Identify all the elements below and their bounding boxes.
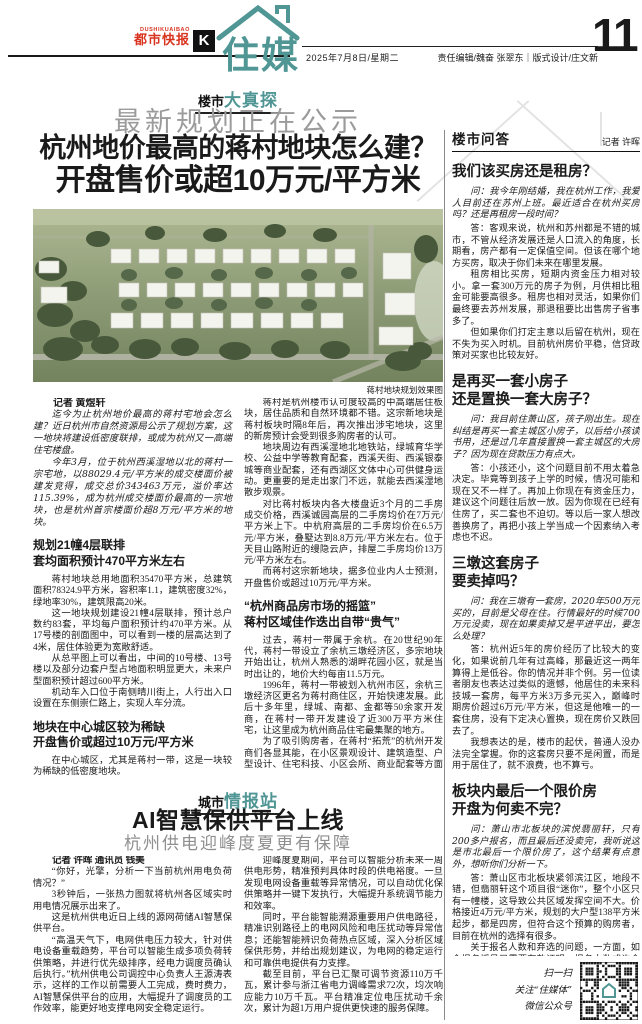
subhead-planning: 规划21幢4层联排 套均面积预计470平方米左右 [33, 538, 232, 570]
question-head-sell-sandun: 三墩这套房子 要卖掉吗？ [452, 555, 640, 591]
question-text: 问：我今年刚结婚，我在杭州工作，我爱人目前还在苏州上班。最近适合在杭州买房吗？还… [452, 186, 640, 221]
column-divider [444, 130, 445, 1020]
subhead-cradle: “杭州商品房市场的摇篮” 蒋村区域佳作迭出自带“贵气” [244, 599, 443, 631]
body-paragraph: 对比蒋村板块内各大楼盘近3个月的二手房成交价格，西溪诚园高层的二手房均价在7万元… [244, 500, 443, 568]
answer-paragraph: 租房相比买房，短期内资金压力相对较小。拿一套300万元的房子为例，月供相比租金可… [452, 269, 640, 327]
byline: 记者 黄煜轩 [33, 398, 232, 409]
answer-paragraph: 但如果你们打定主意以后留在杭州，现在不失为买入时机。目前杭州房价平稳，信贷政策对… [452, 327, 640, 362]
answer-paragraph: 答：小孩还小，这个问题目前不用太着急决定。毕竟等到孩子上学的时候，情况可能和现在… [452, 463, 640, 544]
qa-column: 楼市问答 记者 许晖 我们该买房还是租房？ 问：我今年刚结婚，我在杭州工作，我爱… [452, 128, 640, 1024]
qr-code [580, 962, 638, 1020]
body-paragraph: 同时，平台能智能溯源重要用户供电路径，精准识别路径上的电网风险和电压扰动等异常信… [244, 913, 443, 970]
question-text: 问：萧山市北板块的滨悦翡丽轩，只有200多户报名，而且最后还没卖完，我听说这是市… [452, 824, 640, 870]
question-head-line: 板块内最后一个限价房 [452, 783, 640, 801]
question-head-line: 我们该买房还是租房？ [452, 163, 640, 181]
page-number: 11 [592, 8, 637, 62]
body-paragraph: 过去，蒋村一带属于余杭。在20世纪90年代，蒋村一带设立了余杭三墩经济区，多宗地… [244, 636, 443, 681]
question-head-buy-or-rent: 我们该买房还是租房？ [452, 163, 640, 181]
body-paragraph: 这一地块规划建设21幢4层联排，预计总户数约83套，平均每户面积预计约470平方… [33, 609, 232, 654]
question-head-price-cap: 板块内最后一个限价房 开盘为何卖不完？ [452, 783, 640, 819]
qa-header: 楼市问答 记者 许晖 [452, 128, 640, 152]
power-subheadline: 杭州供电迎峰度夏更有保障 [33, 829, 443, 854]
question-head-small-or-big: 是再买一套小房子 还是置换一套大房子？ [452, 373, 640, 409]
wechat-qr-footer: 扫一扫 关注“住媒体” 微信公众号 [452, 956, 640, 1024]
power-article-body: 记者 许晖 通讯员 钱美 “你好，光擎，分析一下当前杭州用电负荷情况？” 3秒钟… [33, 856, 443, 1024]
body-paragraph: 蒋村是杭州楼市认可度较高的中高端居住板块，居住品质和自然环境都不错。这宗新地块是… [244, 398, 443, 443]
intro-paragraph: 今年3月，位于杭州西溪湿地以北的蒋村一宗宅地，以88029.4元/平方米的成交楼… [33, 457, 232, 529]
editors-credit: 责任编辑/魏奋 张翠东｜版式设计/庄文新 [368, 51, 598, 64]
subhead-line: 套均面积预计470平方米左右 [33, 554, 232, 570]
zhumei-house-logo: 住媒 [214, 2, 302, 93]
body-paragraph: “高温天气下，电网供电压力较大，针对供电设备重载趋势，平台可以智能生成多项负荷转… [33, 936, 232, 1016]
qr-caption-line: 关注“住媒体” [515, 983, 572, 1000]
answer-paragraph: 我想表达的是，楼市的起伏，普通人没办法完全掌握。你的这套房只要不是闲置，而是用于… [452, 737, 640, 772]
qr-caption-line: 微信公众号 [515, 999, 572, 1016]
body-paragraph: 蒋村地块总用地面积35470平方米，总建筑面积78324.9平方米，容积率1.1… [33, 575, 232, 609]
question-head-line: 要卖掉吗？ [452, 573, 640, 591]
body-paragraph: 而蒋村这宗新地块，据多位业内人士预测，开盘售价或超过10万元/平方米。 [244, 567, 443, 590]
qr-caption: 扫一扫 关注“住媒体” 微信公众号 [515, 966, 572, 1016]
body-paragraph: 3秒钟后，一张热力图就将杭州各区域实时用电情况展示出来了。 [33, 890, 232, 913]
newspaper-brand: DUSHIKUAIBAO 都市快报 [112, 27, 190, 47]
headline-line2: 开盘售价或超10万元/平方米 [33, 164, 443, 197]
body-paragraph: 地块周边有西溪湿地北地铁站，绿城育华学校、公益中学等教育配套，西溪天街、西溪银泰… [244, 443, 443, 499]
qr-caption-line: 扫一扫 [515, 966, 572, 983]
main-article-body: 记者 黄煜轩 迄今为止杭州地价最高的蒋村宅地会怎么建？近日杭州市自然资源局公示了… [33, 398, 443, 786]
body-paragraph: 迎峰度夏期间，平台可以智能分析未来一周供电形势，精准预判具体时段的供电裕度。一旦… [244, 856, 443, 913]
byline: 记者 许晖 通讯员 钱美 [33, 856, 232, 867]
headline-line1: 杭州地价最高的蒋村地块怎么建？ [33, 134, 443, 164]
main-headline: 杭州地价最高的蒋村地块怎么建？ 开盘售价或超10万元/平方米 [33, 134, 443, 197]
subhead-line: 地块在中心城区较为稀缺 [33, 720, 232, 736]
answer-paragraph: 答：客观来说，杭州和苏州都是不错的城市，不管从经济发展还是人口流入的角度，长期看… [452, 223, 640, 269]
subhead-scarcity: 地块在中心城区较为稀缺 开盘售价或超过10万元/平方米 [33, 720, 232, 752]
newspaper-page: DUSHIKUAIBAO 都市快报 K 住媒 2025年7月8日/星期二 责任编… [0, 0, 642, 1024]
brand-name-chinese: 都市快报 [112, 33, 190, 47]
qa-section-title: 楼市问答 [452, 128, 510, 148]
question-head-line: 还是置换一套大房子？ [452, 391, 640, 409]
intro-paragraph: 迄今为止杭州地价最高的蒋村宅地会怎么建？近日杭州市自然资源局公示了规划方案，这一… [33, 409, 232, 457]
body-paragraph: 机动车入口位于南侧晴川街上，人行出入口设置在东侧崇仁路上，实现人车分流。 [33, 688, 232, 711]
body-paragraph: 从总平图上可以看出，中间的10号楼、13号楼以及部分边套户型占地面积明显更大，未… [33, 654, 232, 688]
k-logo: K [193, 30, 215, 52]
answer-paragraph: 答：萧山区市北板块紧邻滨江区，地段不错，但翡丽轩这个项目很“迷你”，整个小区只有… [452, 873, 640, 943]
photo-caption: 蒋村地块规划效果图 [33, 384, 443, 396]
question-head-line: 是再买一套小房子 [452, 373, 640, 391]
body-paragraph: 在中心城区，尤其是蒋村一带，这是一块较为稀缺的低密度地块。 [33, 756, 232, 779]
body-paragraph: 1996年，蒋村一带被划入杭州市区，余杭三墩经济区更名为蒋村商住区，开始快速发展… [244, 681, 443, 737]
zhumei-logo-text: 住媒 [222, 35, 300, 76]
body-paragraph: “你好，光擎，分析一下当前杭州用电负荷情况？” [33, 867, 232, 890]
body-paragraph: 这是杭州供电近日上线的源网荷储AI智慧保供平台。 [33, 913, 232, 936]
question-head-line: 三墩这套房子 [452, 555, 640, 573]
subhead-line: 开盘售价或超过10万元/平方米 [33, 735, 232, 751]
qa-byline: 记者 许晖 [602, 135, 640, 148]
masthead-rule-right [302, 46, 598, 47]
question-head-line: 开盘为何卖不完？ [452, 801, 640, 819]
body-paragraph: 截至目前，平台已汇聚可调节资源110万千瓦，累计参与浙江省电力调峰需求72次，均… [244, 970, 443, 1016]
question-text: 问：我在三墩有一套房，2020年500万元买的，目前是父母在住。行情最好的时候7… [452, 596, 640, 642]
subhead-line: 规划21幢4层联排 [33, 538, 232, 554]
article-intro: 迄今为止杭州地价最高的蒋村宅地会怎么建？近日杭州市自然资源局公示了规划方案，这一… [33, 409, 232, 529]
answer-paragraph: 答：杭州近5年的房价经历了比较大的变化，如果说前几年有过高峰，那最近这一两年算得… [452, 644, 640, 737]
aerial-rendering-photo [33, 209, 443, 382]
question-text: 问：我目前住萧山区，孩子刚出生。现在纠结是再买一套主城区小房子，以后给小孩读书用… [452, 414, 640, 460]
subhead-line: “杭州商品房市场的摇篮” [244, 599, 443, 615]
subhead-line: 蒋村区域佳作迭出自带“贵气” [244, 615, 443, 631]
